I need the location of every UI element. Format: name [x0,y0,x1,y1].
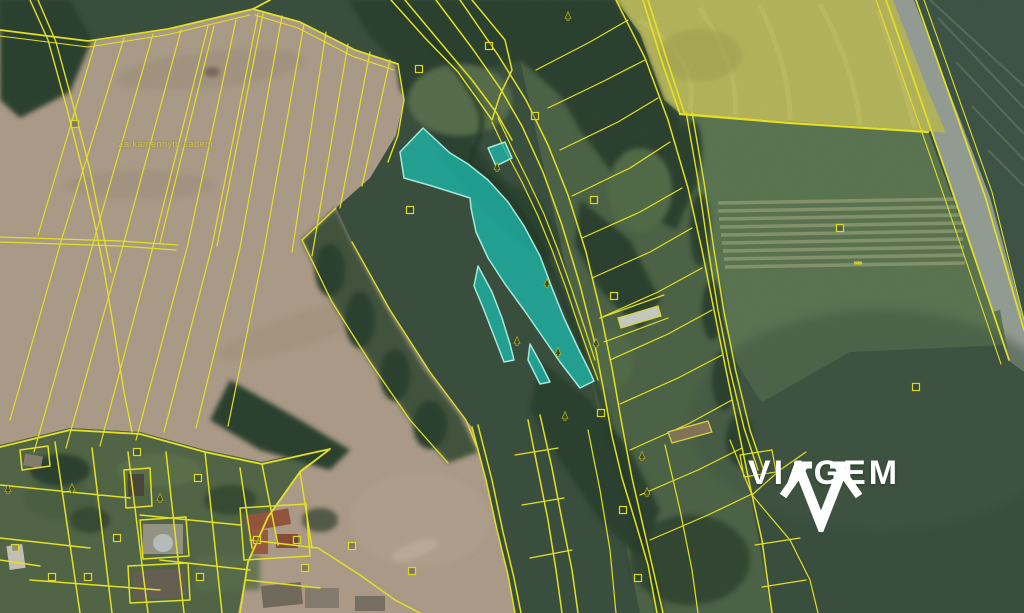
map-viewport[interactable]: Za kamenným sadem VIAGEM [0,0,1024,613]
aerial-cadastral-map[interactable] [0,0,1024,613]
imagery-grain-texture [0,0,1024,613]
